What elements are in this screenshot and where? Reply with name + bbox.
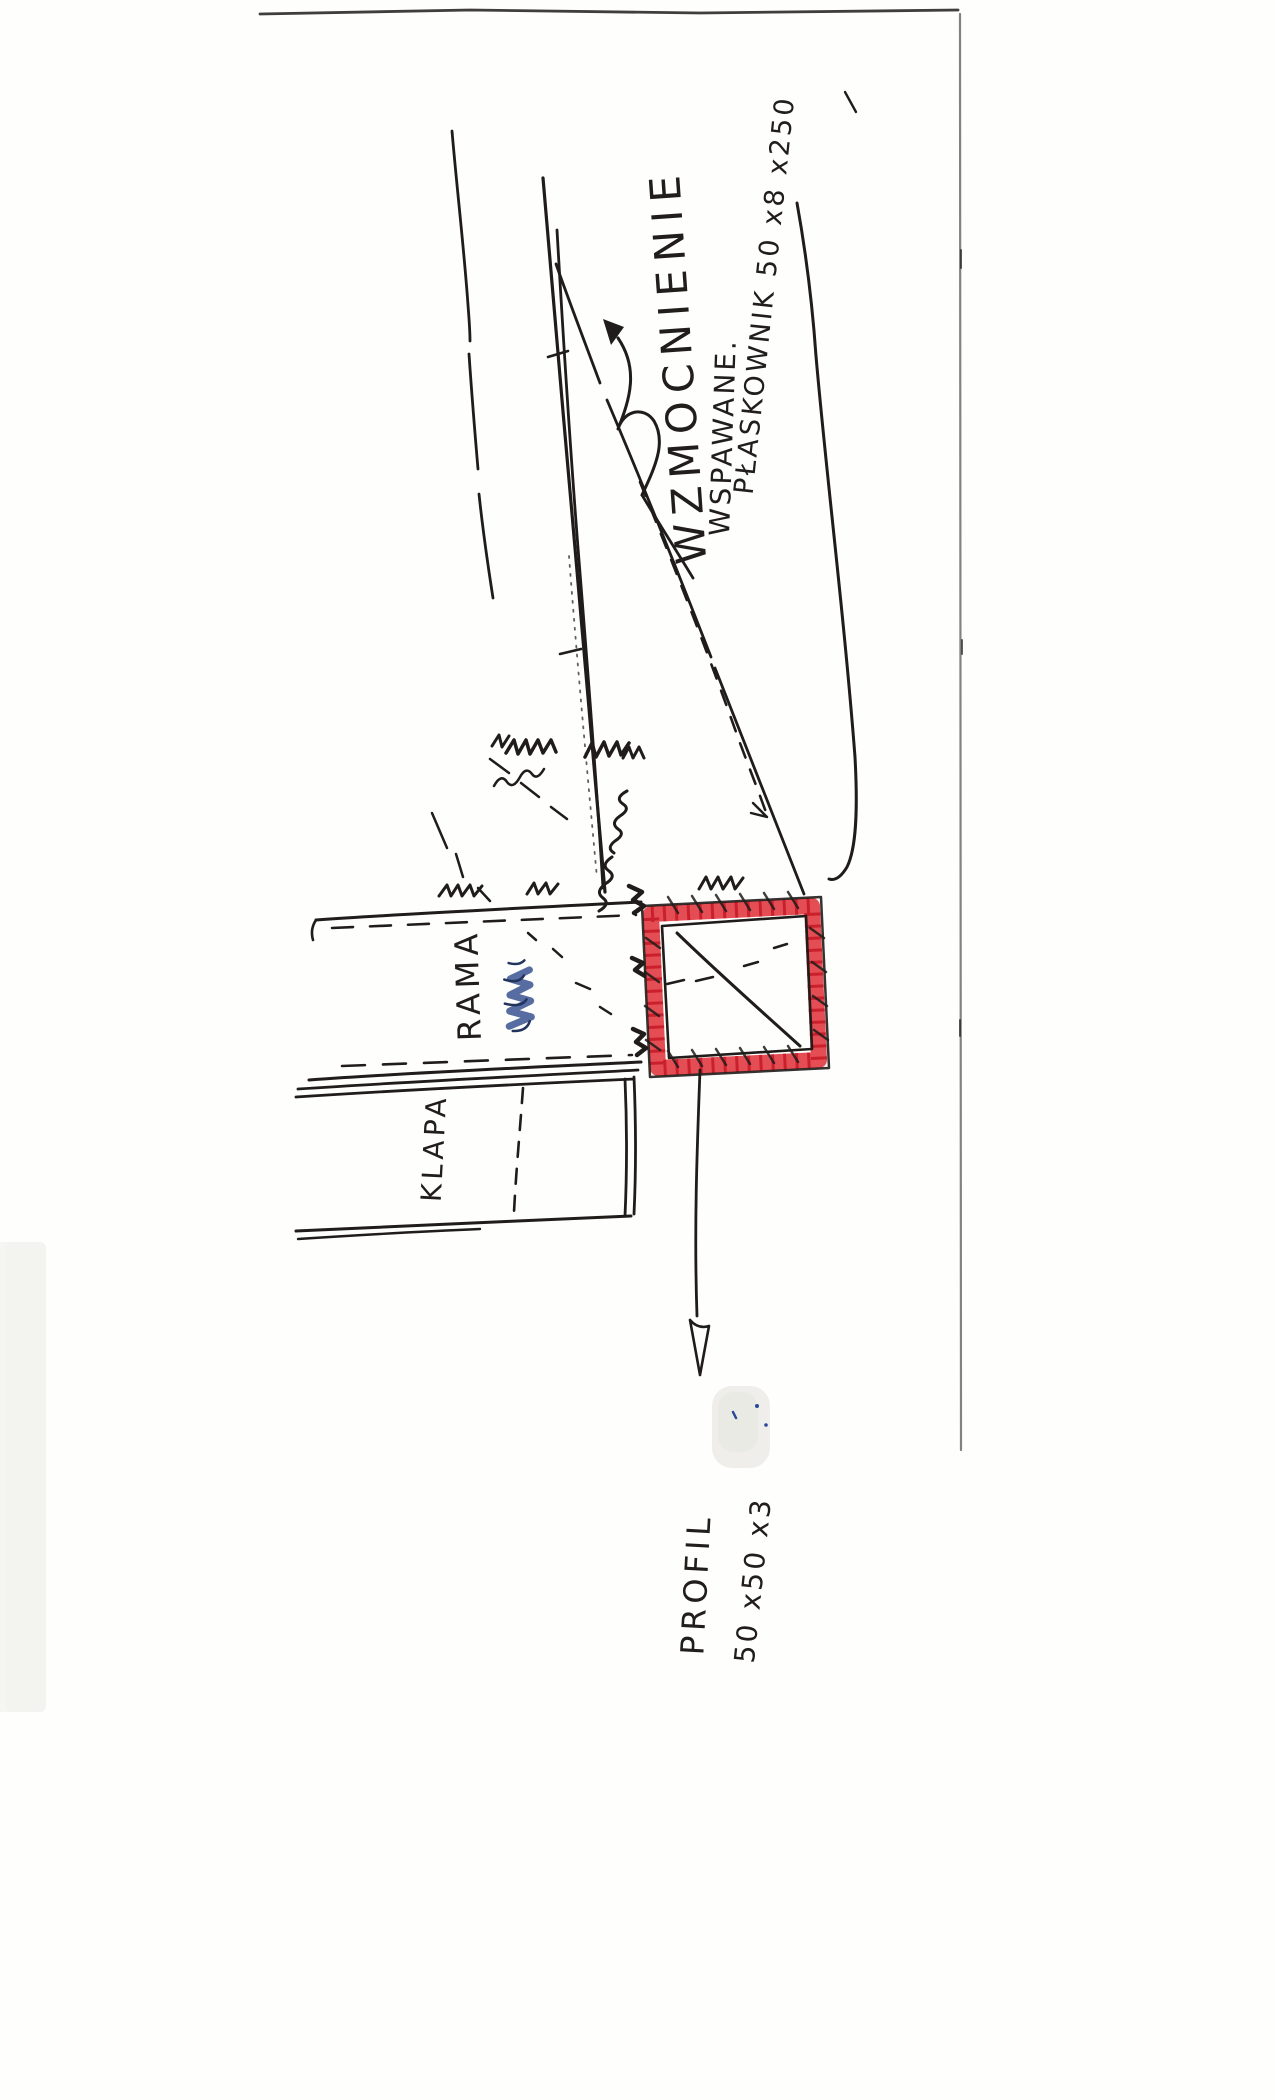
blue-speck [764,1423,768,1427]
sketch-drawing [0,0,1275,2100]
klapa-top-edge [296,1079,634,1097]
dash-chain [490,759,567,819]
member-tick-lower [560,649,581,654]
klapa-dashed-divider [514,1088,523,1212]
blue-scribble [501,960,536,1032]
flat-bar-leader-curve [797,203,856,880]
klapa-right-edge [625,1079,627,1216]
scan-artifacts [0,10,962,1712]
profile-leader-arrow [690,1070,709,1375]
scan-edge-top-line [260,10,958,14]
scan-shadow-strip-inner [0,1242,12,1712]
rama-top-edge [316,902,641,920]
weld-tack-blob [633,1029,646,1055]
profile-square [642,892,829,1077]
correction-smudge [712,1386,770,1468]
blue-speck [755,1404,759,1408]
frame-label: RAMA [447,928,489,1042]
profile-square-diagonal [677,933,800,1046]
profile-leader-line [696,1070,700,1316]
profile-leader-arrowhead [690,1320,709,1375]
left-wavy-line [432,131,567,901]
rama-inner-dashes [528,933,611,1014]
stray-dash [845,92,856,112]
scan-edge-right-line [960,14,962,1450]
scanned-sketch-page: WZMOCNIENIE WSPAWANE. PŁASKOWNIK 50 x8 x… [0,0,1275,2100]
long-member-lines [543,178,605,892]
klapa-outline [296,1077,636,1239]
flap-label: KLAPA [415,1093,454,1203]
profile-label: PROFIL [673,1512,718,1656]
weld-tack-blob [632,958,645,976]
